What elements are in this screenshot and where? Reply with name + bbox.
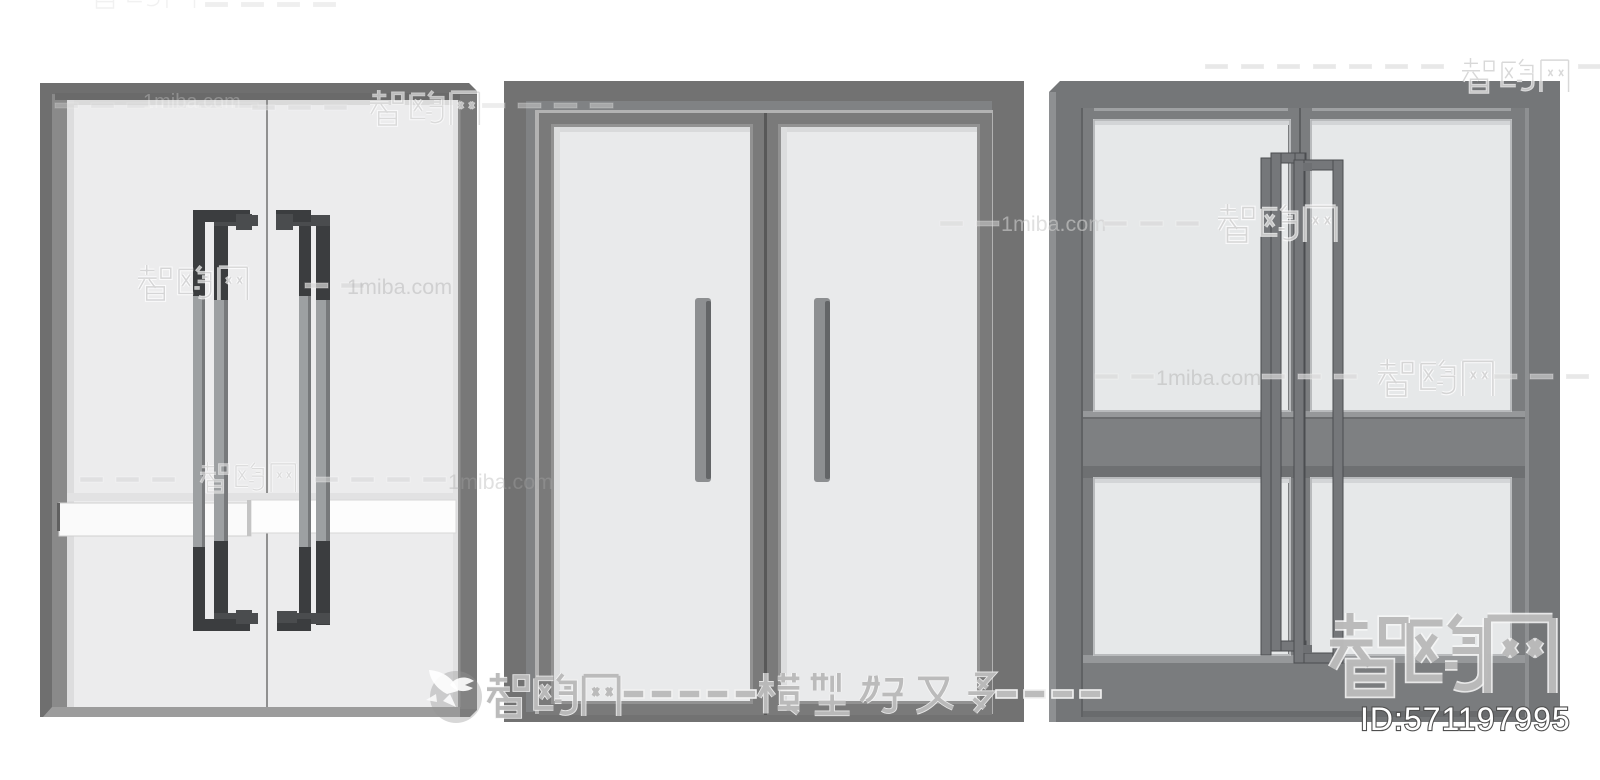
- svg-text:1miba.com: 1miba.com: [1156, 366, 1261, 390]
- svg-text:1miba.com: 1miba.com: [347, 275, 452, 299]
- svg-text:1miba.com: 1miba.com: [1001, 212, 1106, 236]
- svg-text:1miba.com: 1miba.com: [448, 470, 553, 494]
- svg-text:ID:571197995: ID:571197995: [1360, 701, 1571, 737]
- svg-text:1miba.com: 1miba.com: [143, 91, 241, 113]
